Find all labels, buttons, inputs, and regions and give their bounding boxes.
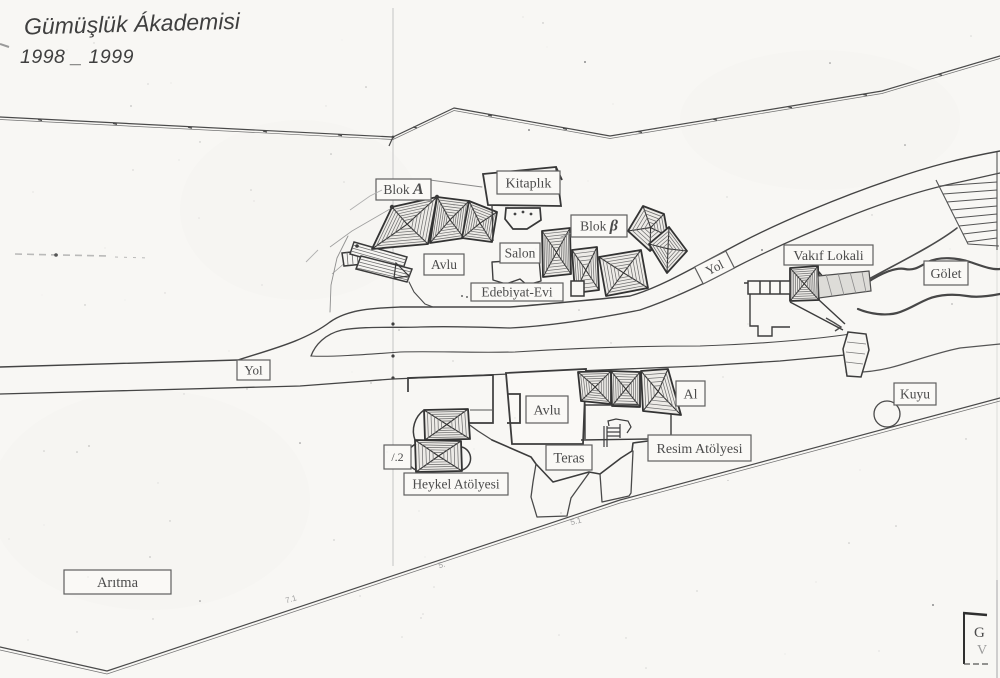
svg-text:Kuyu: Kuyu [900, 387, 930, 402]
svg-text:Yol: Yol [244, 362, 263, 377]
svg-text:Avlu: Avlu [534, 403, 561, 418]
svg-text:Gümüşlük Ákademisi: Gümüşlük Ákademisi [24, 8, 242, 40]
svg-text:Kitaplık: Kitaplık [506, 176, 552, 191]
svg-text:Resim Atölyesi: Resim Atölyesi [657, 442, 743, 457]
svg-text:Salon: Salon [505, 246, 536, 261]
svg-text:Blok β: Blok β [580, 218, 619, 235]
svg-text:Al: Al [684, 387, 698, 402]
svg-text:1998 _ 1999: 1998 _ 1999 [20, 46, 134, 68]
svg-text:/.2: /.2 [391, 450, 403, 464]
svg-text:Heykel Atölyesi: Heykel Atölyesi [412, 477, 500, 492]
svg-text:G: G [974, 625, 985, 641]
svg-text:Arıtma: Arıtma [97, 575, 139, 591]
svg-text:7.1: 7.1 [284, 593, 298, 605]
svg-text:Edebiyat-Evi: Edebiyat-Evi [481, 285, 552, 300]
svg-text:Teras: Teras [553, 450, 585, 466]
svg-text:Avlu: Avlu [431, 257, 457, 272]
svg-text:.: . [725, 474, 729, 483]
svg-text:5.1: 5.1 [569, 515, 583, 527]
svg-text:Blok A: Blok A [383, 181, 424, 198]
svg-text:Vakıf Lokali: Vakıf Lokali [793, 249, 863, 264]
svg-text:Gölet: Gölet [930, 267, 961, 282]
svg-text:V: V [977, 643, 987, 658]
